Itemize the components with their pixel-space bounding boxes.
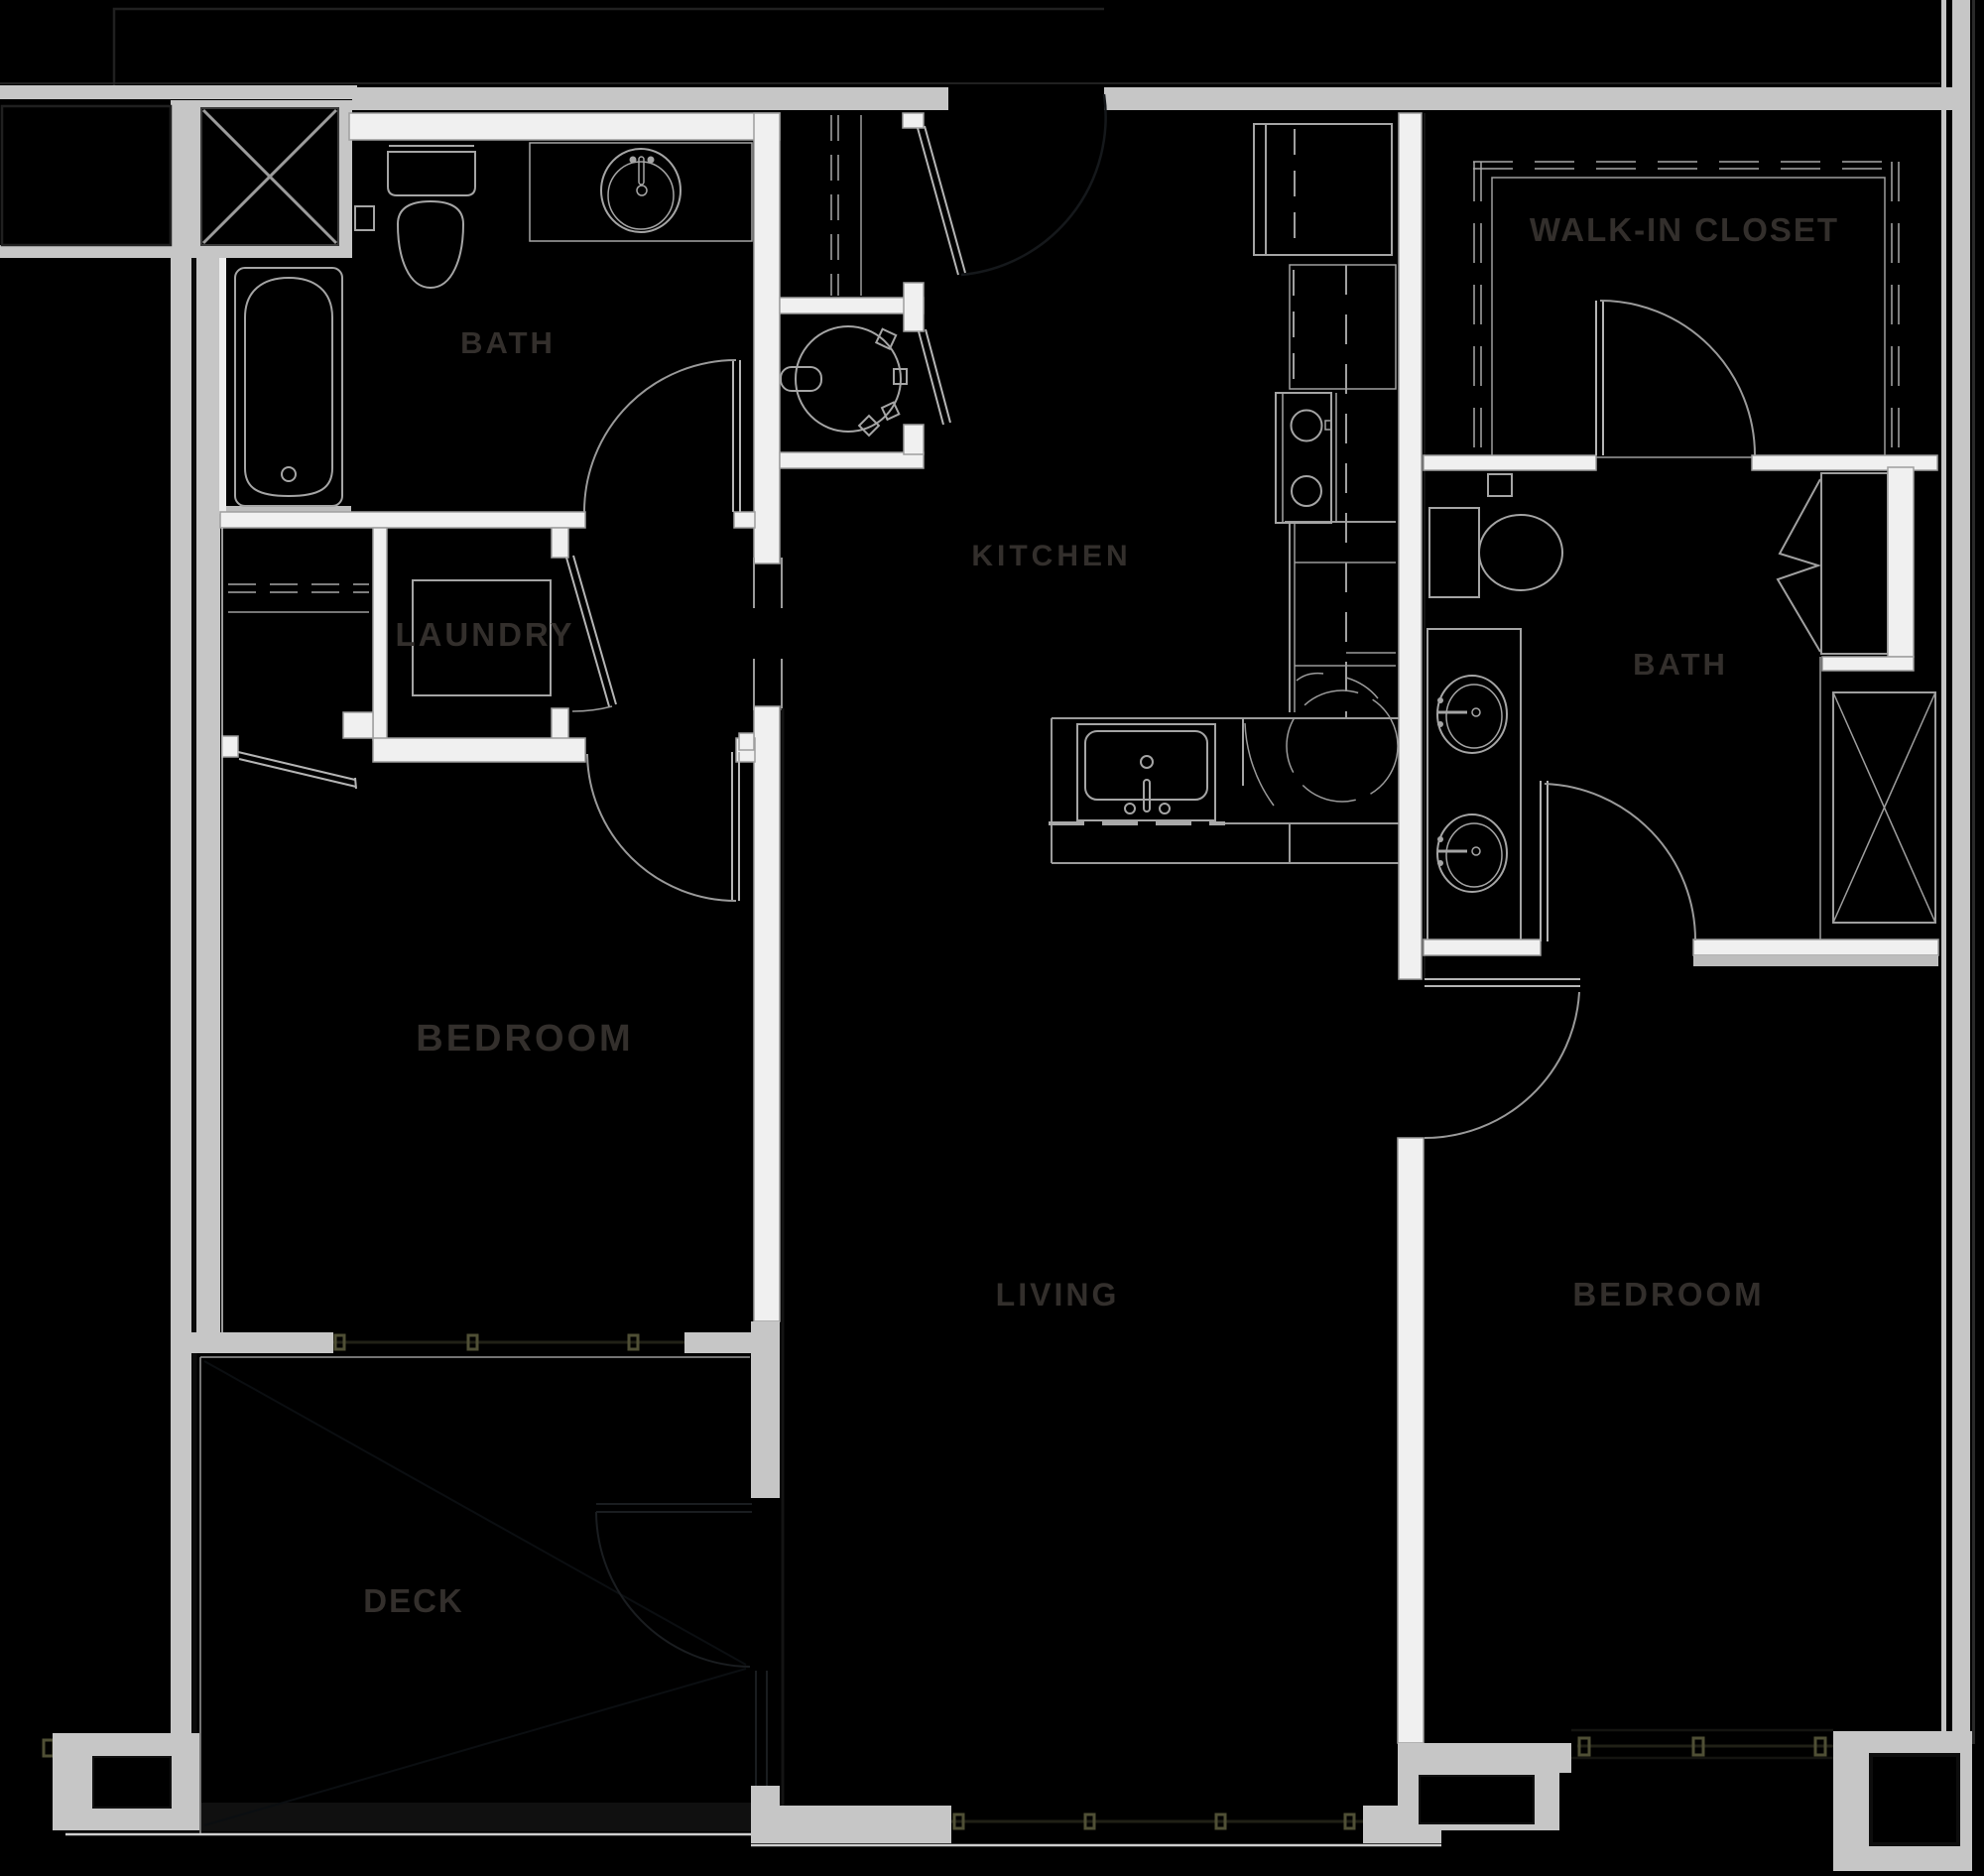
svg-text:KITCHEN: KITCHEN (971, 540, 1131, 572)
svg-text:BATH: BATH (1633, 647, 1728, 682)
svg-text:BEDROOM: BEDROOM (416, 1018, 633, 1060)
svg-text:LAUNDRY: LAUNDRY (395, 616, 574, 653)
svg-text:WALK-IN CLOSET: WALK-IN CLOSET (1530, 211, 1839, 248)
svg-text:BATH: BATH (460, 325, 556, 360)
svg-text:DECK: DECK (363, 1582, 464, 1619)
svg-text:BEDROOM: BEDROOM (1572, 1276, 1764, 1313)
svg-text:LIVING: LIVING (996, 1277, 1120, 1313)
